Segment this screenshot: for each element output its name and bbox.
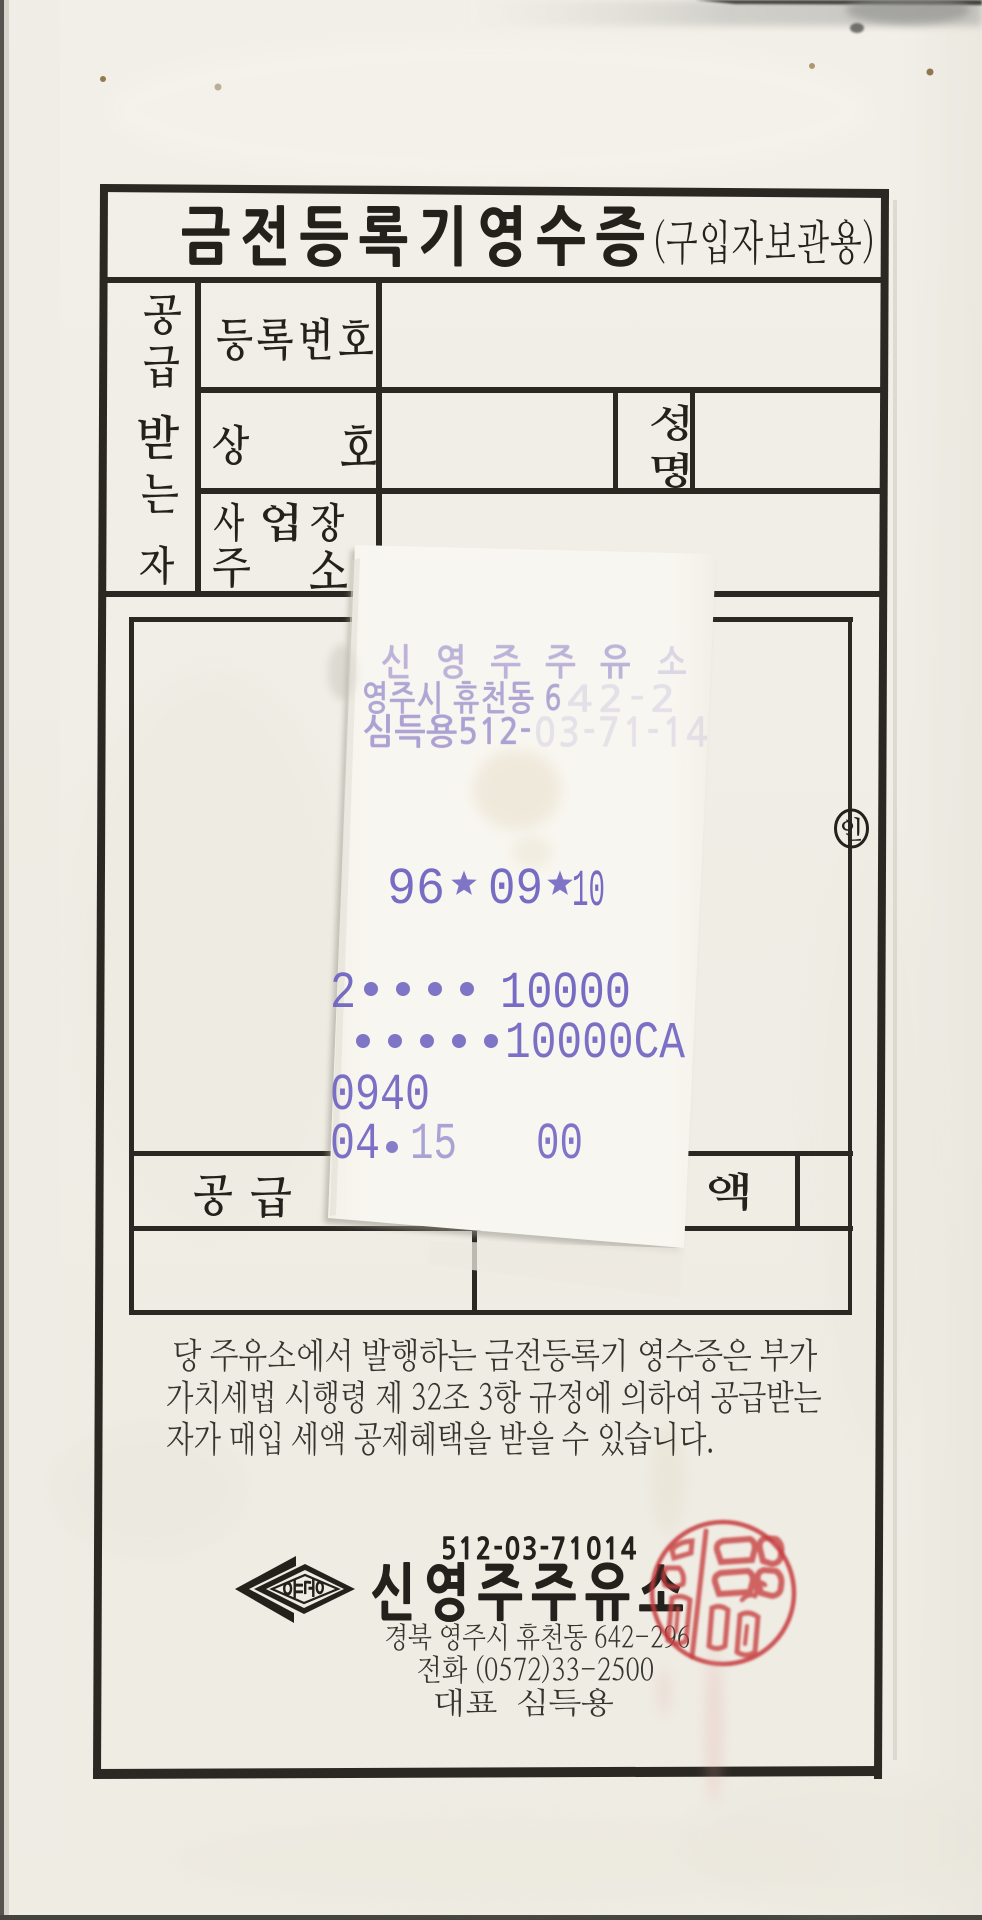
svg-text:15: 15 xyxy=(410,1115,457,1174)
svg-text:10: 10 xyxy=(572,862,605,921)
svg-text:10000CA: 10000CA xyxy=(505,1014,686,1073)
svg-text:04: 04 xyxy=(330,1115,380,1174)
svg-text:96: 96 xyxy=(387,860,445,919)
svg-text:09: 09 xyxy=(488,860,543,919)
svg-text:00: 00 xyxy=(536,1115,583,1174)
svg-text:2: 2 xyxy=(330,964,356,1023)
